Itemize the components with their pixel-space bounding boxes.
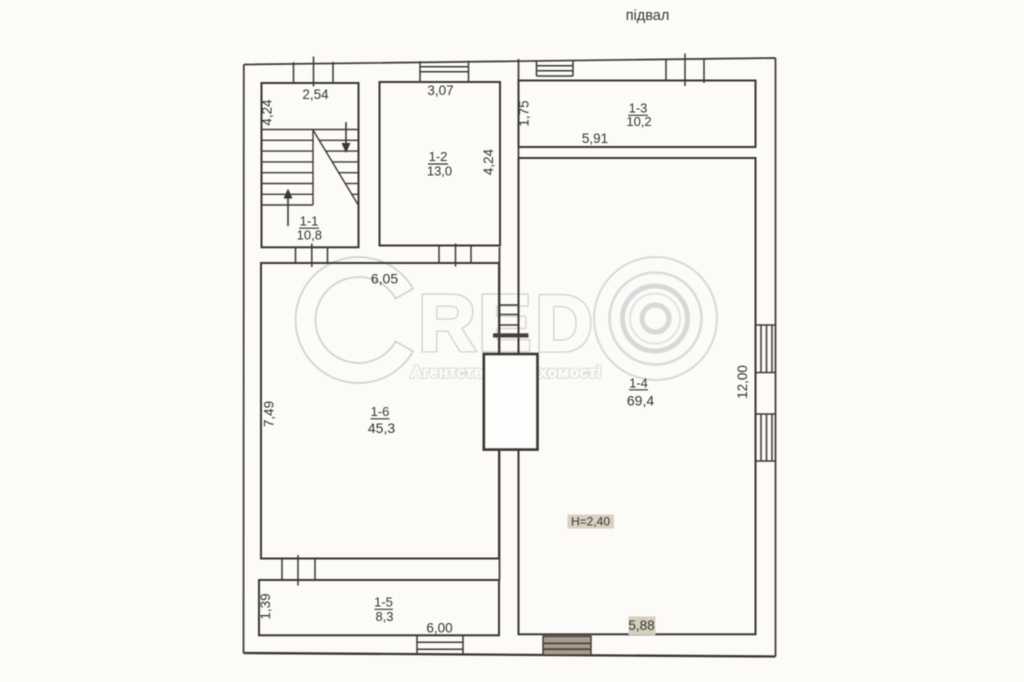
- svg-text:1-4: 1-4: [629, 375, 648, 390]
- svg-text:6,00: 6,00: [426, 621, 452, 636]
- svg-text:1-6: 1-6: [371, 404, 390, 419]
- svg-text:2,54: 2,54: [302, 87, 329, 102]
- svg-text:8,3: 8,3: [375, 609, 393, 624]
- svg-text:підвал: підвал: [626, 8, 670, 24]
- svg-text:4,24: 4,24: [260, 99, 275, 126]
- svg-text:69,4: 69,4: [627, 393, 654, 409]
- svg-text:R: R: [419, 278, 476, 367]
- svg-text:45,3: 45,3: [368, 420, 395, 436]
- svg-text:5,88: 5,88: [628, 618, 654, 633]
- svg-text:10,8: 10,8: [297, 228, 322, 243]
- svg-text:3,07: 3,07: [427, 83, 453, 98]
- svg-text:1-1: 1-1: [300, 214, 319, 229]
- svg-text:10,2: 10,2: [626, 114, 651, 129]
- svg-text:13,0: 13,0: [427, 163, 452, 178]
- svg-text:1-5: 1-5: [374, 594, 393, 609]
- svg-text:5,91: 5,91: [582, 131, 608, 146]
- svg-text:D: D: [536, 279, 593, 368]
- svg-text:6,05: 6,05: [371, 271, 398, 287]
- svg-text:H=2,40: H=2,40: [571, 515, 610, 529]
- svg-text:7,49: 7,49: [262, 401, 277, 427]
- svg-text:1-2: 1-2: [429, 149, 448, 164]
- svg-text:12,00: 12,00: [735, 365, 750, 399]
- svg-text:4,24: 4,24: [481, 148, 496, 175]
- svg-text:1,39: 1,39: [258, 593, 273, 619]
